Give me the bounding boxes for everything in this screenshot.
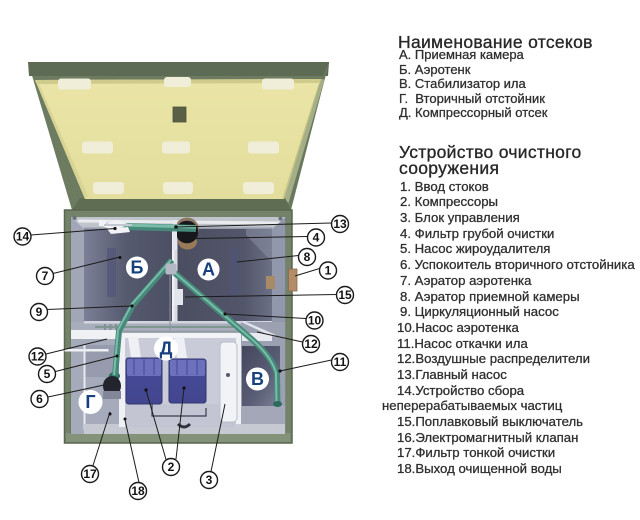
svg-text:Г: Г — [85, 392, 95, 412]
svg-text:12: 12 — [304, 337, 318, 351]
svg-text:1: 1 — [325, 264, 332, 278]
svg-text:13: 13 — [333, 217, 347, 231]
svg-text:3: 3 — [206, 473, 213, 487]
svg-text:5: 5 — [44, 367, 51, 381]
svg-text:7: 7 — [42, 269, 49, 283]
svg-text:18: 18 — [131, 484, 145, 498]
svg-text:14: 14 — [16, 230, 30, 244]
svg-text:Б: Б — [131, 258, 144, 278]
svg-text:2: 2 — [168, 460, 175, 474]
svg-text:6: 6 — [36, 392, 43, 406]
svg-text:9: 9 — [36, 305, 43, 319]
svg-text:8: 8 — [304, 250, 311, 264]
svg-text:15: 15 — [338, 288, 352, 302]
svg-text:Д: Д — [160, 339, 173, 359]
svg-text:А: А — [202, 260, 215, 280]
svg-text:17: 17 — [83, 467, 97, 481]
svg-text:11: 11 — [334, 355, 347, 369]
svg-text:10: 10 — [308, 314, 322, 328]
svg-text:В: В — [251, 369, 264, 389]
svg-text:12: 12 — [31, 350, 45, 364]
svg-text:4: 4 — [313, 231, 320, 245]
